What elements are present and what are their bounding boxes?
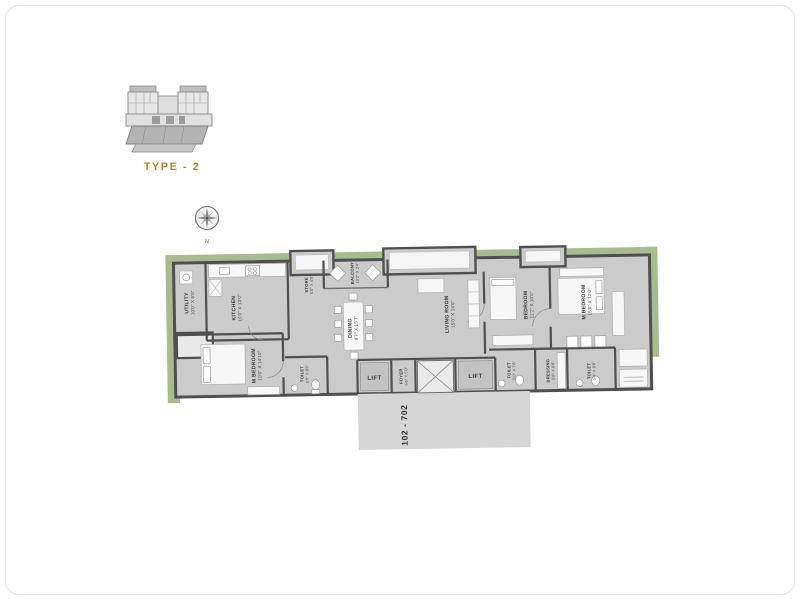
compass-rose	[196, 207, 219, 230]
compass-icon: N	[189, 202, 225, 248]
svg-text:5'0" X 4'0": 5'0" X 4'0"	[309, 275, 314, 294]
compass-north-label: N	[205, 239, 209, 245]
floorplan: UTILITY 10'0" X 5'0" KITCHEN 10'0" X 13'…	[161, 239, 665, 460]
svg-text:5'0" X 7'6": 5'0" X 7'6"	[511, 360, 516, 379]
room-kitchen: KITCHEN 10'0" X 13'0"	[231, 294, 242, 322]
svg-text:10'2" X 3'4": 10'2" X 3'4"	[354, 262, 359, 284]
svg-text:9'7" X 15'7": 9'7" X 15'7"	[353, 315, 358, 340]
room-dining: DINING 9'7" X 15'7"	[347, 315, 358, 340]
keyplan-building-outline	[126, 86, 212, 152]
room-m-bedroom-right: M BEDROOM 15'0" X 12'0"	[581, 284, 593, 319]
room-m-bedroom-left: M BEDROOM 10'0" X 14'10"	[251, 348, 263, 383]
room-toilet-mid: TOILET 5'0" X 7'6"	[506, 360, 516, 379]
floorplan-page: TYPE - 2 N	[0, 0, 800, 600]
room-foyer: FOYER 5'6" X 5'0"	[398, 366, 408, 385]
lobby-block	[358, 391, 531, 450]
room-lift-left: LIFT	[367, 376, 381, 382]
room-balcony: BALCONY 10'2" X 3'4"	[349, 262, 359, 285]
room-toilet-left: TOILET 5'0" X 8'0"	[299, 364, 309, 383]
keyplan-type-label: TYPE - 2	[118, 161, 226, 173]
svg-text:10'0" X 5'0": 10'0" X 5'0"	[190, 290, 195, 315]
dressing-closet	[557, 352, 566, 388]
room-toilet-right: TOILET 5'0" X 8'6"	[586, 361, 596, 380]
svg-text:102 - 702: 102 - 702	[399, 404, 410, 445]
svg-text:5'0" X 8'0": 5'0" X 8'0"	[304, 364, 309, 383]
svg-text:5'6" X 8'6": 5'6" X 8'6"	[550, 361, 555, 380]
svg-text:15'0" X 12'0": 15'0" X 12'0"	[587, 288, 592, 316]
service-duct	[417, 360, 454, 393]
room-dressing: DRESSING 5'6" X 8'6"	[545, 359, 555, 383]
unit-range-label: 102 - 702	[399, 404, 410, 445]
svg-text:5'6" X 5'0": 5'6" X 5'0"	[403, 366, 408, 385]
room-utility: UTILITY 10'0" X 5'0"	[184, 290, 195, 315]
svg-text:10'0" X 13'0": 10'0" X 13'0"	[237, 294, 242, 322]
svg-text:5'0" X 8'6": 5'0" X 8'6"	[591, 361, 596, 380]
keyplan-thumbnail	[122, 80, 222, 160]
room-store: STORE 5'0" X 4'0"	[304, 275, 314, 294]
room-bedroom: BEDROOM 11'2" X 10'0"	[523, 290, 535, 319]
room-lift-right: LIFT	[468, 374, 482, 380]
svg-text:10'0" X 14'10": 10'0" X 14'10"	[257, 350, 263, 380]
svg-text:11'2" X 10'0": 11'2" X 10'0"	[529, 291, 534, 318]
svg-text:15'0" X 14'6": 15'0" X 14'6"	[450, 300, 455, 328]
room-living: LIVING ROOM 15'0" X 14'6"	[444, 295, 456, 333]
